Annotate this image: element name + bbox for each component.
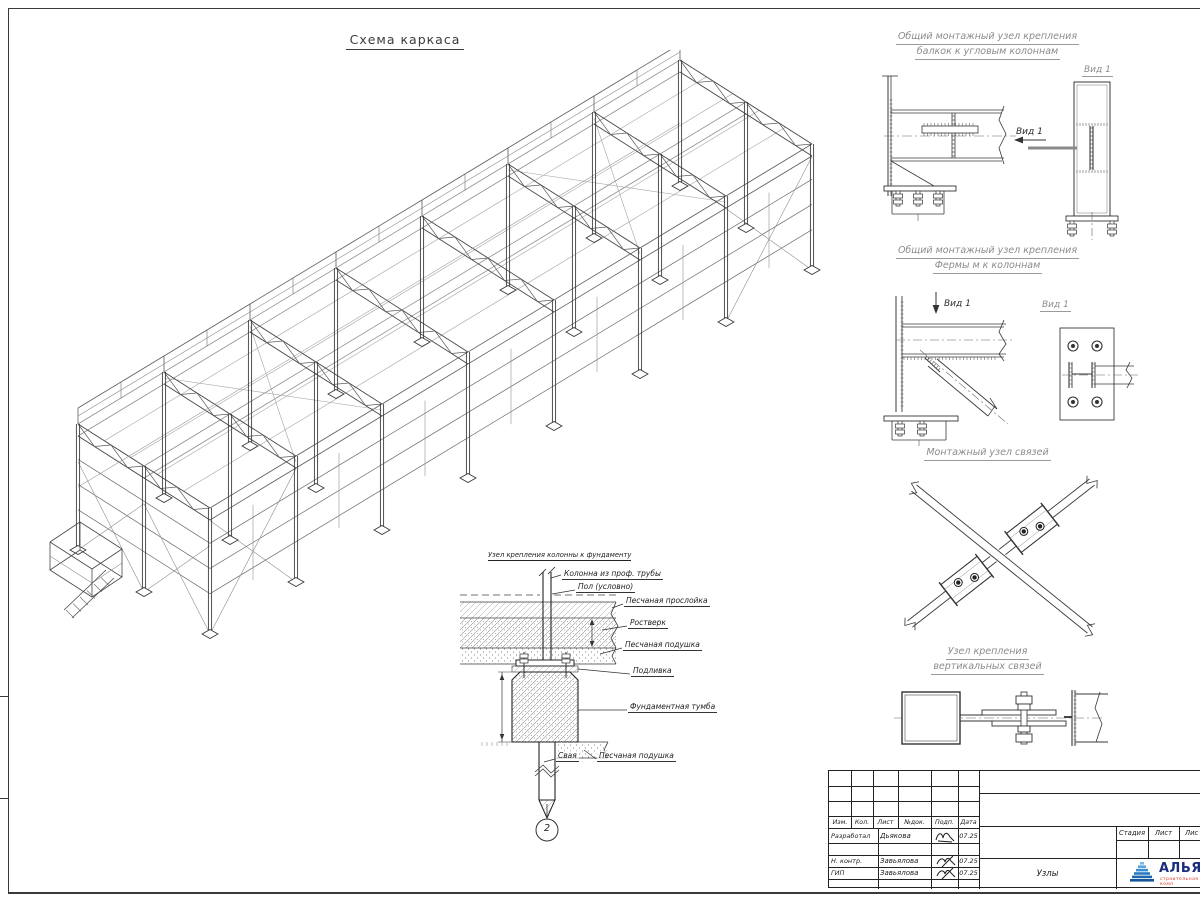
tb-header-list: Лист <box>873 816 898 828</box>
logo-subtext: строительная комп <box>1160 877 1200 887</box>
tb-header-izm: Изм. <box>829 816 851 828</box>
tb-role-developer: Разработал <box>831 828 877 843</box>
foundation-label-grillage: Ростверк <box>628 618 668 629</box>
frame-border-top <box>8 8 1200 9</box>
drawing-sheet: Схема каркаса Общий монтажный узел крепл… <box>0 0 1200 900</box>
signature-scribble <box>933 829 957 843</box>
tb-header-sheets: Лис <box>1185 826 1200 840</box>
logo-text: АЛЬЯН <box>1159 861 1200 876</box>
detail4-vertical-brace-drawing <box>886 682 1112 756</box>
tb-header-stage: Стадия <box>1116 826 1148 840</box>
company-logo: АЛЬЯН строительная комп <box>1121 859 1200 889</box>
title-block: Изм. Кол. Лист №док. Подп. Дата Разработ… <box>828 770 1200 888</box>
foundation-detail: Колонна из проф. трубы Пол (условно) Пес… <box>452 560 787 860</box>
tb-doc-title: Узлы <box>979 858 1116 889</box>
frame-border-left <box>8 8 9 893</box>
detail4-heading: Узел крепления вертикальных связей <box>870 645 1105 675</box>
main-view-title: Схема каркаса <box>330 32 480 47</box>
tb-name-gip: Завьялова <box>880 867 930 879</box>
detail2-view-arrow-label: Вид 1 <box>944 299 971 309</box>
foundation-label-column: Колонна из проф. трубы <box>562 569 663 580</box>
signature-scribble <box>933 855 957 867</box>
detail1-beam-corner-column-drawing <box>876 66 1142 248</box>
tb-name-developer: Дьякова <box>880 828 930 843</box>
foundation-label-sand-layer: Песчаная прослойка <box>624 596 710 607</box>
tb-name-ncontr: Завьялова <box>880 855 930 867</box>
tb-header-ndok: №док. <box>898 816 931 828</box>
detail1-heading: Общий монтажный узел крепления балкок к … <box>870 30 1105 60</box>
frame-border-bottom <box>8 892 1200 894</box>
tb-header-kol: Кол. <box>851 816 873 828</box>
signature-scribble <box>933 867 957 879</box>
foundation-section-drawing <box>452 560 787 860</box>
detail1-view-title: Вид 1 <box>1082 65 1113 77</box>
foundation-label-floor: Пол (условно) <box>576 582 635 593</box>
tb-date-ncontr: 07.25 <box>958 855 979 867</box>
tb-header-podp: Подп. <box>931 816 958 828</box>
tb-role-gip: ГИП <box>831 867 877 879</box>
foundation-label-block: Фундаментная тумба <box>628 702 717 713</box>
detail2-truss-column-drawing <box>876 288 1142 450</box>
tb-role-ncontr: Н. контр. <box>831 855 877 867</box>
tb-date-gip: 07.25 <box>958 867 979 879</box>
detail2-view-title: Вид 1 <box>1040 300 1071 312</box>
frame-fold-mark <box>0 798 8 799</box>
foundation-label-sand-cushion1: Песчаная подушка <box>623 640 702 651</box>
tb-date-developer: 07.25 <box>958 828 979 843</box>
foundation-label-grout: Подливка <box>631 666 674 677</box>
foundation-label-sand-cushion2: Песчаная подушка <box>597 751 676 762</box>
detail3-brace-node-drawing <box>886 462 1120 640</box>
detail3-heading: Монтажный узел связей <box>870 446 1105 461</box>
logo-triangle-icon <box>1129 862 1155 885</box>
detail2-heading: Общий монтажный узел крепления Фермы м к… <box>870 244 1105 274</box>
foundation-node-marker: 2 <box>540 823 554 834</box>
tb-header-sheet: Лист <box>1148 826 1179 840</box>
foundation-label-pile: Свая <box>556 751 579 762</box>
detail1-view-arrow-label: Вид 1 <box>1016 127 1043 137</box>
frame-fold-mark <box>0 696 8 697</box>
tb-header-data: Дата <box>958 816 979 828</box>
